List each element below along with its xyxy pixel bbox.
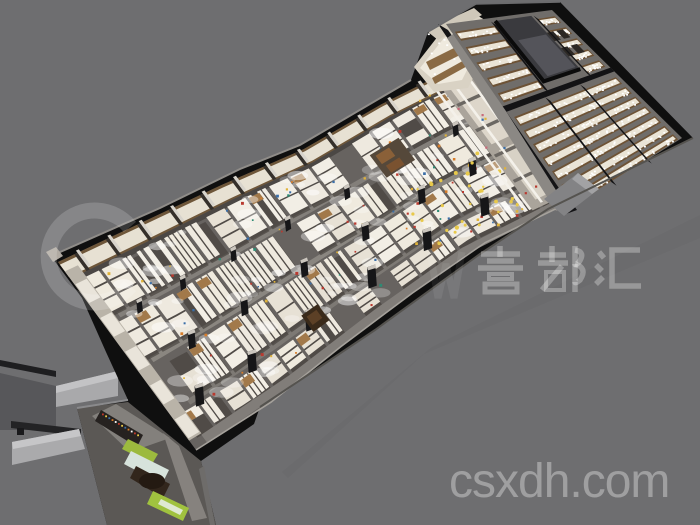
svg-text:csxdh.com: csxdh.com (449, 455, 669, 508)
